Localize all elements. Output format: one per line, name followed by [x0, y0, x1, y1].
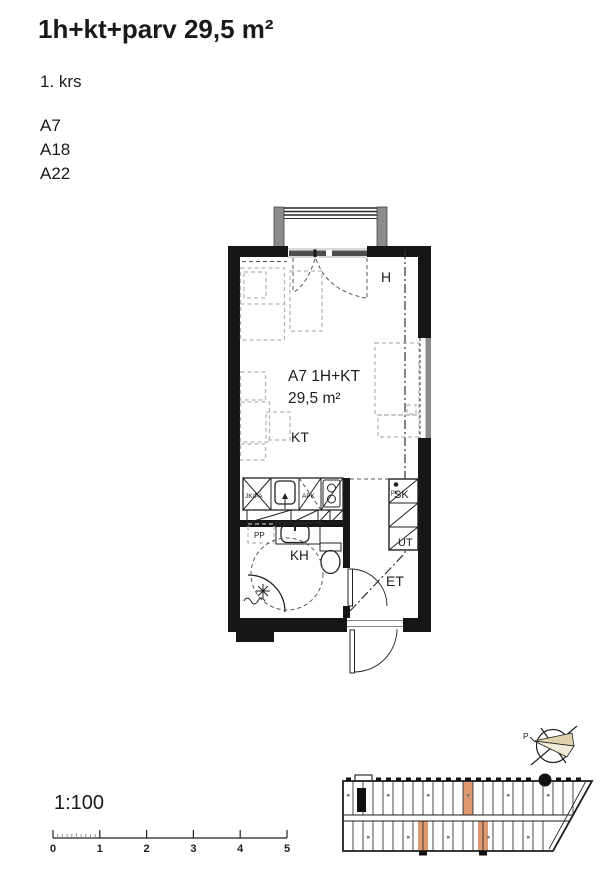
stove [321, 478, 343, 510]
scale-tick: 5 [284, 843, 290, 855]
label-entry: ET [386, 573, 404, 589]
highlighted-unit [463, 782, 473, 815]
balcony-post [274, 207, 284, 248]
label-hall: H [381, 269, 391, 285]
balcony [274, 207, 387, 248]
floor-plan-drawing: H A7 1H+KT 29,5 m² KT KH ET SK UT JK/PA … [0, 0, 615, 870]
balcony-post [377, 207, 387, 248]
loft-edge-line [350, 250, 405, 611]
label-closet-ut: UT [398, 537, 413, 549]
unit-door-dots [347, 794, 550, 839]
kitchen-fixtures [243, 478, 343, 523]
right-wall-window [418, 338, 431, 438]
apartment-floor-plan: H A7 1H+KT 29,5 m² KT KH ET SK UT JK/PA … [228, 207, 431, 673]
bed-top-left [241, 268, 285, 340]
balcony-window [288, 249, 367, 257]
toilet [320, 543, 341, 574]
bathroom-door [348, 569, 387, 606]
furniture [241, 268, 420, 460]
balcony-door-swing [293, 258, 367, 299]
label-area: 29,5 m² [288, 390, 341, 407]
label-washer-space: PP [254, 531, 265, 540]
shower-corner [244, 538, 323, 612]
scale-tick: 4 [237, 843, 244, 855]
scale-tick: 0 [50, 843, 56, 855]
label-fridge: JK/PA [245, 493, 263, 500]
stairwell [357, 788, 366, 812]
scale-tick: 3 [190, 843, 196, 855]
label-dishwasher: APK [302, 493, 316, 500]
label-apartment-id: A7 1H+KT [288, 368, 360, 385]
label-water-point: pv [391, 489, 399, 496]
tap-icon [282, 493, 288, 499]
unit-dividers-top [353, 781, 573, 815]
scale-tick: 1 [97, 843, 103, 855]
compass-icon: P [523, 726, 577, 765]
stair-tower [539, 774, 552, 787]
bed-right [375, 343, 419, 437]
scale-tick: 2 [144, 843, 150, 855]
entrance-door [347, 621, 403, 674]
north-label: P [523, 731, 529, 741]
site-key-plan: P [343, 726, 592, 856]
bathroom-fixtures [244, 522, 387, 612]
floor-drain [244, 598, 265, 604]
water-point [394, 482, 399, 487]
sofa-group [241, 372, 291, 460]
scale-bar: 0 1 2 3 4 5 [50, 830, 290, 855]
label-bathroom: KH [290, 548, 309, 563]
wall-pier [236, 627, 274, 642]
label-kitchen: KT [291, 429, 309, 445]
